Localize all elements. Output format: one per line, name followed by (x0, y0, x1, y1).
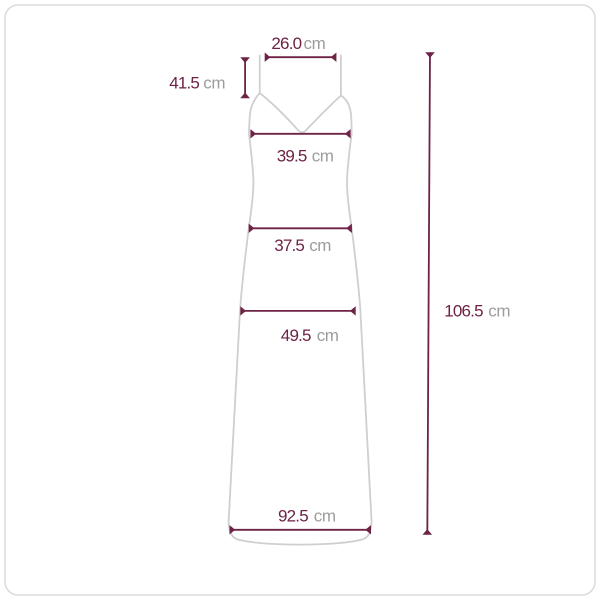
svg-text:26.0cm: 26.0cm (271, 34, 325, 53)
svg-text:39.5cm: 39.5cm (277, 147, 334, 166)
svg-text:106.5cm: 106.5cm (444, 301, 510, 320)
svg-text:37.5cm: 37.5cm (274, 236, 331, 255)
svg-text:41.5cm: 41.5cm (169, 74, 225, 93)
svg-text:92.5cm: 92.5cm (278, 506, 336, 525)
svg-text:49.5cm: 49.5cm (281, 326, 339, 345)
